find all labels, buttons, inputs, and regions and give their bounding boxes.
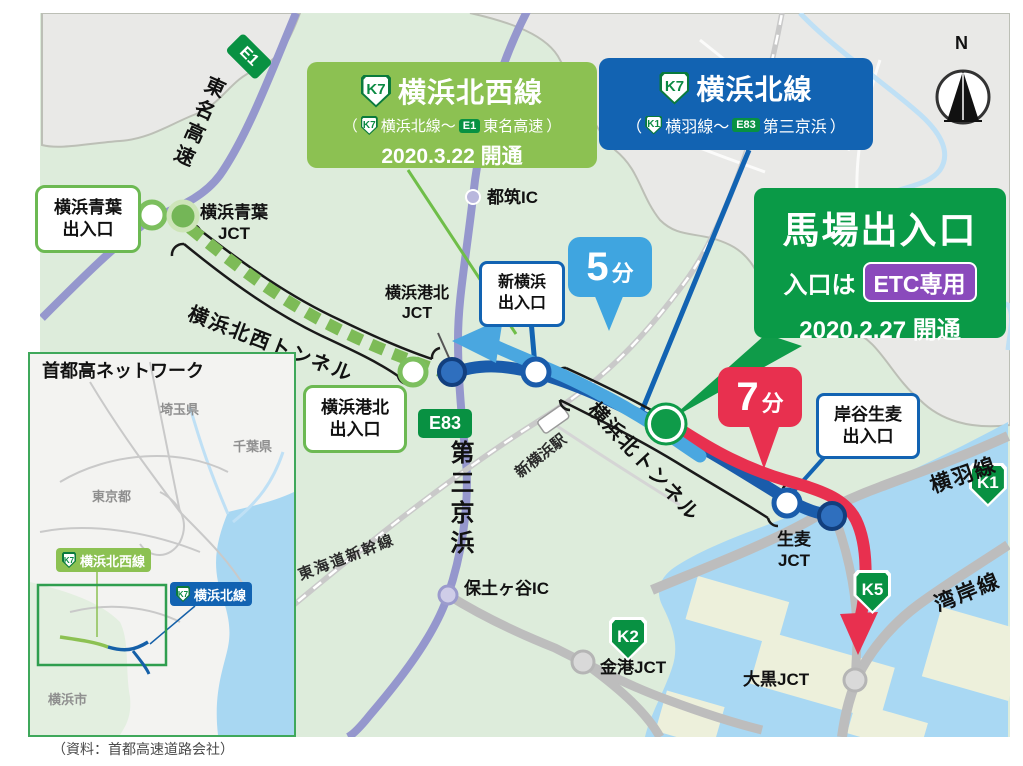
namamugi-exit-marker bbox=[774, 490, 800, 516]
daisan-keihin-label: 第三京浜 bbox=[444, 440, 474, 560]
min5-badge: 5 分 bbox=[568, 237, 652, 297]
hodogaya-ic-marker bbox=[439, 586, 457, 604]
kinko-jct-label: 金港JCT bbox=[600, 657, 666, 678]
namamugi-jct-label: 生麦 JCT bbox=[763, 529, 825, 572]
k7-shield-label: K7 bbox=[363, 77, 388, 105]
map-figure: E1 東名高速 横浜青葉 出入口 横浜青葉 JCT 横浜北西トンネル K7 横浜… bbox=[0, 0, 1023, 766]
nw-sub-text2: 東名高速 bbox=[483, 115, 543, 136]
etc-only-badge: ETC専用 bbox=[863, 262, 977, 302]
inset-bay bbox=[216, 492, 294, 735]
e1-badge-label: E1 bbox=[236, 43, 263, 70]
baba-exit-box: 馬場出入口 入口は ETC専用 2020.2.27 開通 bbox=[754, 188, 1006, 338]
min7-number: 7 bbox=[736, 375, 758, 420]
min7-unit: 分 bbox=[762, 386, 784, 418]
nw-sub-close: ） bbox=[546, 115, 561, 136]
inset-lowland bbox=[30, 582, 130, 735]
north-line-header-box: K7 横浜北線 （ K1 横羽線～ E83 第三京浜 ） bbox=[599, 58, 873, 150]
shinyoko-exit-marker bbox=[523, 359, 549, 385]
nw-open-date: 2020.3.22 開通 bbox=[307, 140, 597, 170]
north-sub-text2: 第三京浜 bbox=[763, 113, 827, 137]
kohoku-exit-marker bbox=[400, 359, 426, 385]
e83-badge-label: E83 bbox=[429, 413, 461, 434]
nw-sub-open: （ bbox=[343, 115, 358, 136]
min5-unit: 分 bbox=[612, 256, 634, 288]
pref-yokohama-label: 横浜市 bbox=[48, 689, 87, 708]
k7-shield-mini-icon: K7 bbox=[62, 552, 76, 568]
pref-saitama-label: 埼玉県 bbox=[160, 399, 199, 418]
inset-legend-north-line: K7 横浜北線 bbox=[170, 582, 252, 606]
compass-icon bbox=[937, 71, 989, 123]
pref-tokyo-label: 東京都 bbox=[92, 486, 131, 505]
k7-shield-mini-icon: K7 bbox=[176, 586, 190, 602]
e1-mini-badge: E1 bbox=[459, 119, 480, 133]
aoba-jct-marker bbox=[169, 202, 197, 230]
pref-chiba-label: 千葉県 bbox=[233, 436, 272, 455]
k1-shield-mini-icon: K1 bbox=[645, 116, 662, 135]
daikoku-jct-label: 大黒JCT bbox=[743, 669, 809, 690]
tsuzuki-ic-marker bbox=[466, 190, 480, 204]
e83-mini-badge: E83 bbox=[732, 118, 760, 132]
daikoku-jct-marker bbox=[844, 669, 866, 691]
nw-sub-text1: 横浜北線～ bbox=[381, 115, 456, 136]
compass-north-label: N bbox=[955, 32, 968, 55]
hodogaya-ic-label: 保土ヶ谷IC bbox=[464, 578, 549, 599]
k7-shield-icon: K7 bbox=[659, 72, 689, 105]
baba-open-date: 2020.2.27 開通 bbox=[754, 310, 1006, 345]
north-sub-close: ） bbox=[830, 113, 846, 137]
aoba-jct-label: 横浜青葉 JCT bbox=[196, 202, 272, 245]
min5-number: 5 bbox=[586, 245, 608, 290]
tsuzuki-ic-label: 都筑IC bbox=[487, 187, 538, 208]
north-sub-open: （ bbox=[626, 113, 642, 137]
aoba-exit-callout: 横浜青葉 出入口 bbox=[35, 185, 141, 253]
aoba-exit-marker bbox=[139, 202, 165, 228]
nw-line-header-box: K7 横浜北西線 （ K7 横浜北線～ E1 東名高速 ） 2020.3.22 … bbox=[307, 62, 597, 168]
kohoku-jct-marker bbox=[439, 359, 465, 385]
nw-line-title: 横浜北西線 bbox=[398, 71, 543, 111]
kinko-jct-marker bbox=[572, 651, 594, 673]
inset-legend-nw-label: 横浜北西線 bbox=[80, 551, 145, 570]
e83-route-badge: E83 bbox=[418, 409, 472, 438]
north-line-title: 横浜北線 bbox=[696, 68, 812, 108]
k7-shield-icon: K7 bbox=[361, 75, 391, 108]
baba-title: 馬場出入口 bbox=[754, 200, 1006, 254]
kohoku-exit-callout: 横浜港北 出入口 bbox=[303, 385, 407, 453]
kohoku-jct-label: 横浜港北 JCT bbox=[378, 284, 456, 324]
namamugi-jct-marker bbox=[819, 503, 845, 529]
min7-badge: 7 分 bbox=[718, 367, 802, 427]
inset-legend-nw-line: K7 横浜北西線 bbox=[56, 548, 151, 572]
inset-legend-north-label: 横浜北線 bbox=[194, 585, 246, 604]
kishiya-exit-callout: 岸谷生麦 出入口 bbox=[816, 393, 920, 459]
source-caption: （資料：首都高速道路会社） bbox=[52, 741, 234, 759]
baba-entrance-text: 入口は bbox=[784, 265, 856, 300]
shinyoko-exit-callout: 新横浜 出入口 bbox=[479, 261, 565, 327]
baba-exit-marker bbox=[649, 407, 683, 441]
k7-shield-mini-icon: K7 bbox=[361, 116, 378, 135]
north-sub-text1: 横羽線～ bbox=[665, 113, 729, 137]
inset-title: 首都高ネットワーク bbox=[42, 360, 204, 383]
inset-network-map: 首都高ネットワーク 埼玉県 千葉県 東京都 横浜市 K7 横浜北西線 K7 横浜… bbox=[28, 352, 296, 737]
